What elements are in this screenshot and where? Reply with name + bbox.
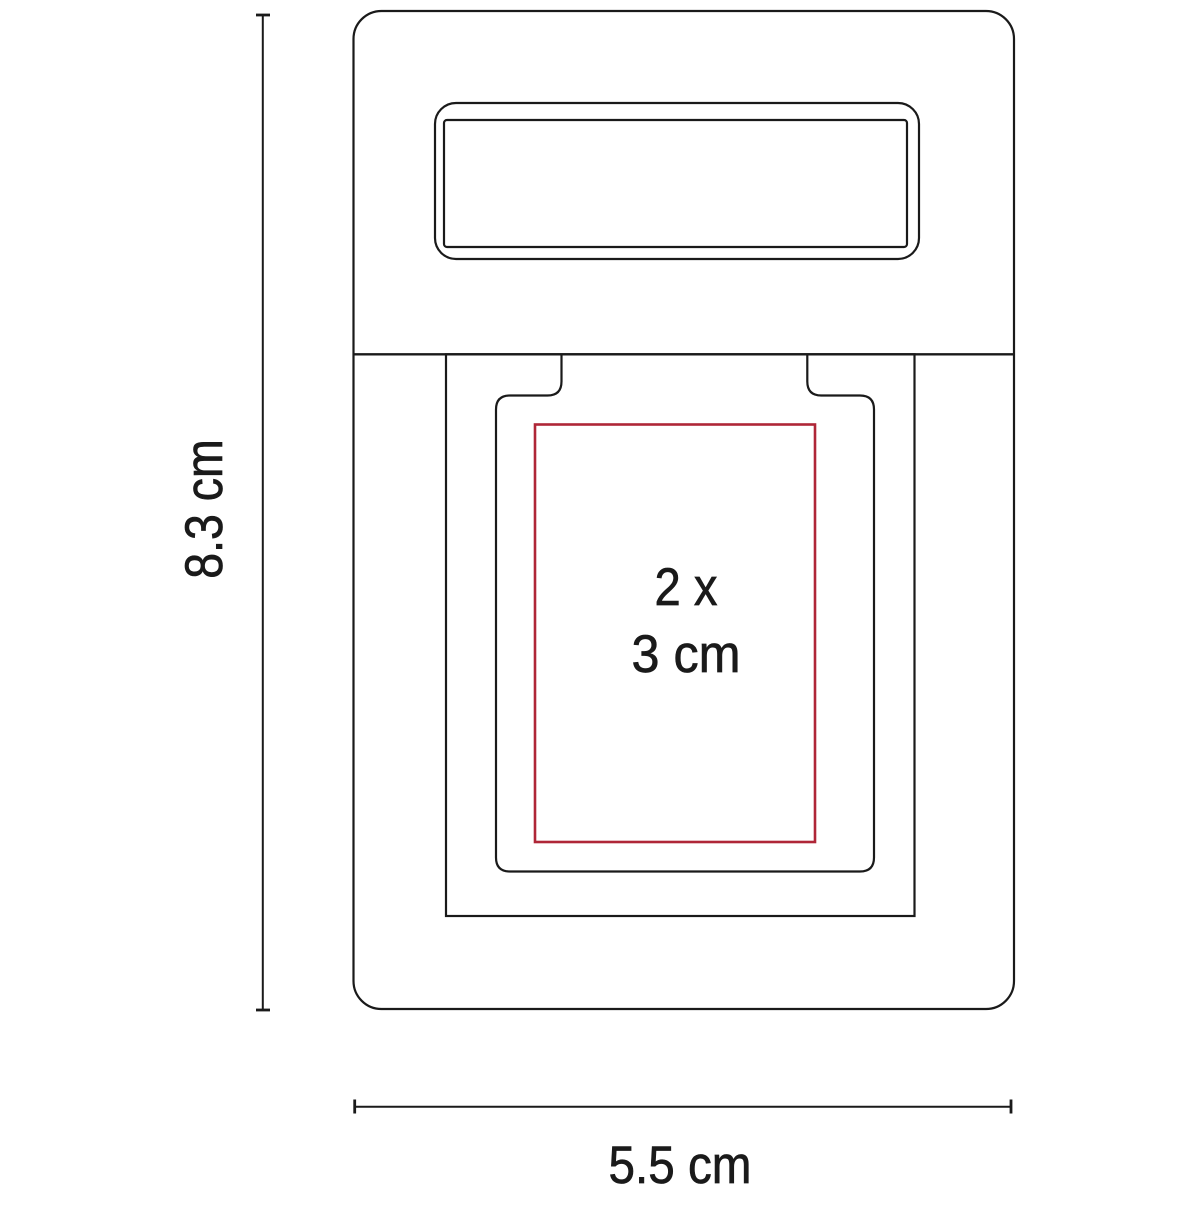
svg-text:5.5 cm: 5.5 cm — [609, 1136, 752, 1195]
svg-text:2 x: 2 x — [655, 558, 718, 617]
svg-text:3 cm: 3 cm — [632, 625, 741, 684]
svg-text:8.3 cm: 8.3 cm — [175, 439, 234, 579]
